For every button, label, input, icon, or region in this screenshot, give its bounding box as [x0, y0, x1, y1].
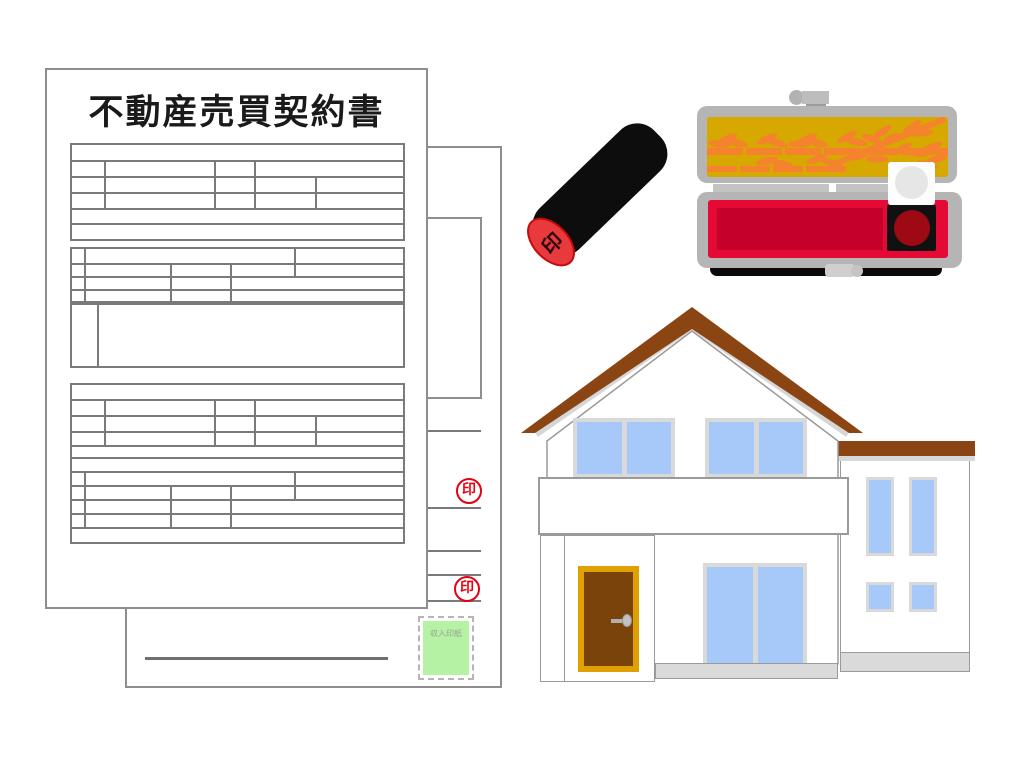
contract-table-row	[72, 192, 403, 208]
contract-table-cell	[104, 178, 214, 192]
annex-window	[909, 477, 937, 556]
revenue-stamp-face: 収入印紙	[423, 621, 469, 675]
contract-table-row	[72, 513, 403, 527]
contract-table-cell	[170, 487, 230, 499]
window-pane	[758, 567, 804, 663]
case-bottom-clasp-icon	[851, 265, 863, 277]
contract-table-cell	[72, 278, 84, 289]
contract-table-cell	[214, 401, 254, 415]
seal-mark-icon: 印	[456, 478, 482, 504]
contract-table-cell	[254, 417, 315, 431]
case-clasp	[802, 91, 829, 104]
contract-table-cell	[84, 501, 170, 513]
contract-table-cell	[97, 305, 403, 366]
window-pane	[869, 585, 891, 609]
contract-table-row	[72, 471, 403, 485]
contract-table-cell	[170, 278, 230, 289]
contract-table-cell	[214, 417, 254, 431]
contract-table-cell	[84, 473, 294, 485]
contract-table-row	[72, 289, 403, 301]
contract-table-cell	[254, 178, 315, 192]
ink-pad	[887, 205, 936, 251]
contract-table-row	[72, 527, 403, 542]
contract-table-cell	[214, 194, 254, 208]
annex-window-small	[909, 582, 937, 612]
contract-table-cell	[72, 178, 104, 192]
contract-table-cell	[72, 459, 403, 471]
contract-table-cell	[72, 473, 84, 485]
contract-table-row	[72, 276, 403, 289]
contract-table-row	[72, 223, 403, 239]
contract-table-cell	[72, 385, 403, 399]
contract-table-cell	[315, 417, 403, 431]
contract-table-cell	[104, 417, 214, 431]
contract-table-row	[72, 457, 403, 471]
contract-table-cell	[72, 401, 104, 415]
contract-table-row	[72, 249, 403, 263]
contract-table-cell	[72, 225, 403, 239]
contract-table-cell	[72, 265, 84, 276]
contract-table-cell	[254, 433, 315, 445]
contract-table-cell	[294, 265, 403, 276]
signature-line	[145, 657, 388, 660]
contract-table-cell	[315, 433, 403, 445]
annex-wall	[840, 456, 970, 672]
window-pane	[627, 422, 672, 474]
contract-table-cell	[104, 194, 214, 208]
contract-table-cell	[72, 249, 84, 263]
window-pane	[577, 422, 622, 474]
contract-table-row	[72, 263, 403, 276]
illustration-canvas: 印 印 収入印紙 不動産売買契約書 印	[0, 0, 1024, 768]
window-pane	[869, 480, 891, 553]
contract-table-row	[72, 485, 403, 499]
second-floor-window	[573, 418, 675, 478]
hanko-face-glyph: 印	[534, 225, 569, 260]
seal-mark-icon: 印	[454, 576, 480, 602]
contract-table-cell	[170, 291, 230, 301]
contract-table-cell	[72, 417, 104, 431]
ink-pad-red-ink	[894, 210, 930, 246]
contract-table-row	[72, 445, 403, 457]
contract-table-cell	[84, 487, 170, 499]
contract-table-row	[72, 399, 403, 415]
revenue-stamp-label: 収入印紙	[430, 628, 462, 639]
contract-table-cell	[72, 501, 84, 513]
second-floor-window	[705, 418, 807, 478]
contract-table-cell	[72, 291, 84, 301]
ink-pad-lid-circle	[895, 166, 928, 199]
contract-table-cell	[294, 473, 403, 485]
contract-table-cell	[104, 162, 214, 176]
contract-table-cell	[254, 162, 403, 176]
annex-window-small	[866, 582, 894, 612]
contract-table-row	[72, 160, 403, 176]
contract-table-cell	[84, 265, 170, 276]
contract-table-cell	[72, 162, 104, 176]
contract-table-cell	[84, 278, 170, 289]
contract-table-cell	[315, 178, 403, 192]
contract-table-cell	[170, 501, 230, 513]
seal-case-stamp-recess	[717, 208, 883, 250]
contract-table-row	[72, 415, 403, 431]
contract-table-row	[72, 305, 403, 366]
window-pane	[707, 567, 753, 663]
window-pane	[912, 585, 934, 609]
contract-table-row	[72, 208, 403, 223]
contract-table-cell	[72, 210, 403, 223]
contract-table-cell	[84, 515, 170, 527]
contract-table	[70, 383, 405, 544]
contract-table-cell	[104, 401, 214, 415]
contract-table-cell	[230, 487, 294, 499]
contract-table-cell	[254, 401, 403, 415]
first-floor-window	[703, 563, 807, 663]
contract-table	[70, 247, 405, 303]
contract-table-row	[72, 499, 403, 513]
contract-table-row	[72, 431, 403, 445]
window-pane	[709, 422, 754, 474]
window-pane	[912, 480, 934, 553]
revenue-stamp: 収入印紙	[418, 616, 474, 680]
contract-table-cell	[72, 194, 104, 208]
contract-table-cell	[315, 194, 403, 208]
door-knob-icon	[622, 614, 632, 627]
contract-table	[70, 143, 405, 241]
contract-table-row	[72, 385, 403, 399]
contract-table-cell	[72, 515, 84, 527]
contract-table-cell	[214, 433, 254, 445]
contract-table-cell	[294, 487, 403, 499]
case-hinge	[713, 184, 829, 192]
contract-table-cell	[254, 194, 315, 208]
house-foundation	[655, 663, 838, 679]
contract-table-cell	[84, 291, 170, 301]
contract-table-cell	[214, 178, 254, 192]
contract-table-cell	[230, 501, 403, 513]
entrance-pillar	[540, 535, 565, 682]
annex-window	[866, 477, 894, 556]
balcony	[538, 477, 849, 535]
contract-table-cell	[230, 265, 294, 276]
contract-table-cell	[72, 529, 403, 542]
contract-table-row	[72, 176, 403, 192]
gable-roof	[521, 307, 863, 433]
contract-table-cell	[72, 145, 403, 160]
contract-table	[70, 303, 405, 368]
annex-roof	[838, 441, 975, 456]
contract-table-cell	[72, 447, 403, 457]
contract-table-cell	[230, 515, 403, 527]
ink-pad-lid	[888, 162, 935, 205]
annex-roof-trim	[838, 456, 975, 461]
contract-table-cell	[170, 515, 230, 527]
contract-table-row	[72, 145, 403, 160]
contract-table-cell	[294, 249, 403, 263]
contract-table-cell	[230, 291, 403, 301]
contract-table-cell	[72, 433, 104, 445]
contract-title: 不動産売買契約書	[45, 84, 428, 135]
contract-table-cell	[72, 487, 84, 499]
contract-table-cell	[104, 433, 214, 445]
contract-table-cell	[230, 278, 403, 289]
contract-table-cell	[170, 265, 230, 276]
contract-table-cell	[72, 305, 97, 366]
contract-table-cell	[214, 162, 254, 176]
contract-table-cell	[84, 249, 294, 263]
annex-foundation	[840, 652, 970, 672]
window-pane	[759, 422, 804, 474]
